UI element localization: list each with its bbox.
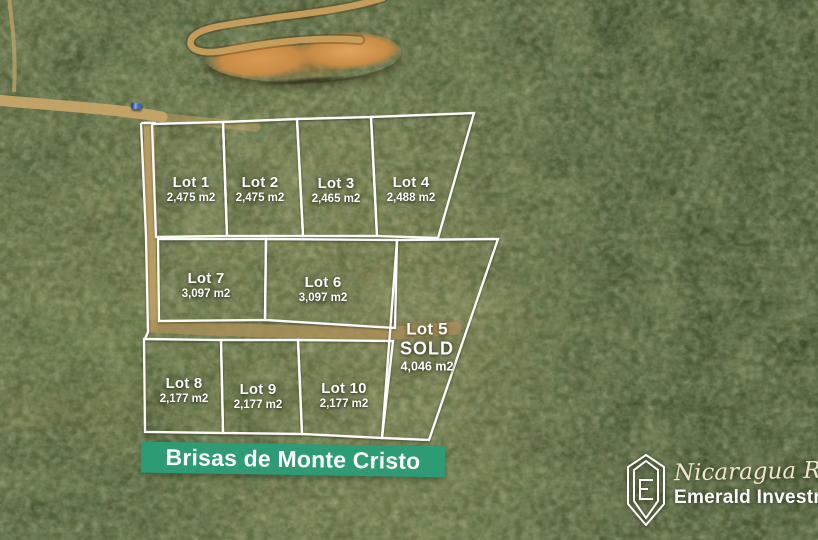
- brand-logo: Nicaragua Real Estate Emerald Investment…: [612, 448, 818, 526]
- lot-area: 4,046 m2: [400, 360, 454, 374]
- emerald-gem-icon: [627, 454, 665, 526]
- logo-text-block: Nicaragua Real Estate Emerald Investment…: [674, 448, 818, 526]
- lot-area: 2,488 m2: [387, 192, 436, 204]
- logo-script-text: Nicaragua Real Estate: [674, 456, 818, 487]
- lot-label-lot-6: Lot 63,097 m2: [299, 275, 348, 305]
- lot-label-lot-3: Lot 32,465 m2: [312, 176, 361, 206]
- lot-label-lot-9: Lot 92,177 m2: [234, 382, 283, 412]
- lot-area: 2,177 m2: [160, 393, 209, 405]
- lot-name: Lot 8: [160, 376, 209, 392]
- lot-area: 2,177 m2: [234, 399, 283, 411]
- lot-name: Lot 7: [182, 271, 231, 287]
- lot-area: 2,475 m2: [167, 192, 216, 204]
- lot-area: 3,097 m2: [182, 288, 231, 300]
- lot-name: Lot 10: [320, 381, 369, 397]
- lot-name: Lot 1: [167, 175, 216, 191]
- lot-name: Lot 9: [234, 382, 283, 398]
- lot-label-lot-10: Lot 102,177 m2: [320, 381, 369, 411]
- lot-name: Lot 2: [236, 175, 285, 191]
- access-corridor-boundary-1: [141, 123, 148, 339]
- lot-area: 3,097 m2: [299, 292, 348, 304]
- lot-name: Lot 6: [299, 275, 348, 291]
- lot-name: Lot 4: [387, 175, 436, 191]
- lot-label-lot-4: Lot 42,488 m2: [387, 175, 436, 205]
- lot-label-lot-5: Lot 5SOLD4,046 m2: [400, 320, 454, 373]
- lot-area: 2,177 m2: [320, 398, 369, 410]
- logo-brand-text: Emerald Investments: [674, 487, 818, 509]
- lot-name: Lot 3: [312, 176, 361, 192]
- lot-name: Lot 5: [400, 320, 454, 338]
- lot-label-lot-7: Lot 73,097 m2: [182, 271, 231, 301]
- lot-label-lot-1: Lot 12,475 m2: [167, 175, 216, 205]
- lot-label-lot-8: Lot 82,177 m2: [160, 376, 209, 406]
- banner-title: Brisas de Monte Cristo: [165, 444, 420, 475]
- lot-status-sold: SOLD: [400, 340, 454, 359]
- lot-area: 2,475 m2: [236, 192, 285, 204]
- lot-area: 2,465 m2: [312, 193, 361, 205]
- location-banner: Brisas de Monte Cristo: [141, 442, 445, 478]
- lot-label-lot-2: Lot 22,475 m2: [236, 175, 285, 205]
- real-estate-aerial-listing: Lot 12,475 m2Lot 22,475 m2Lot 32,465 m2L…: [0, 0, 818, 540]
